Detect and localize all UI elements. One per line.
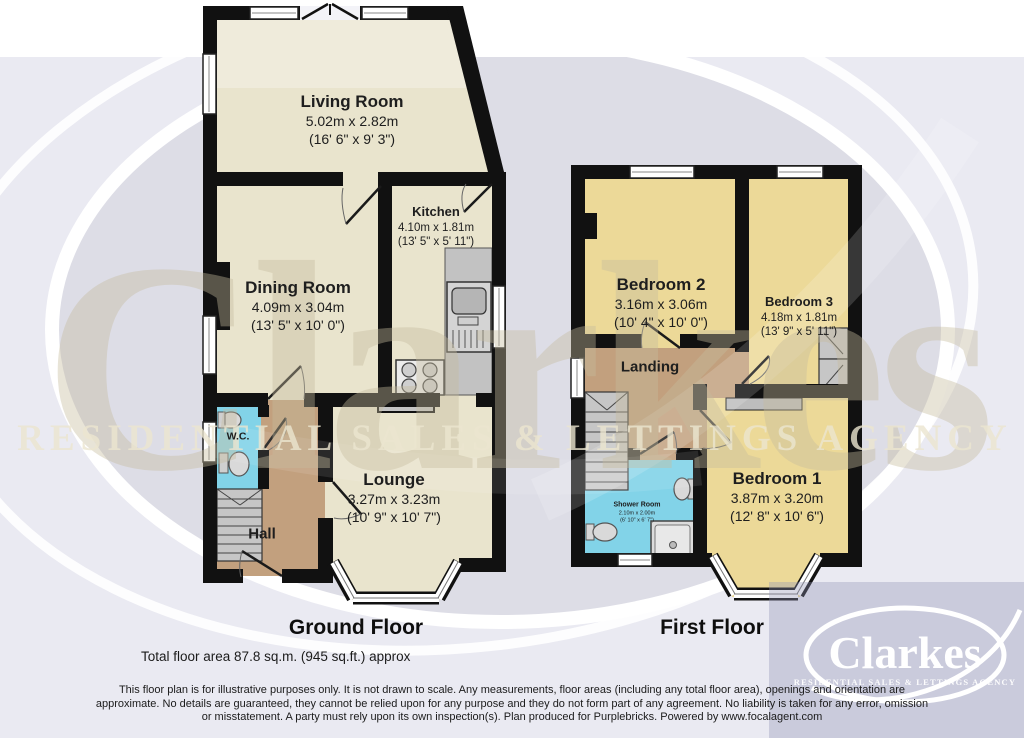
bedroom1-recess <box>726 398 802 410</box>
shower-sink-icon <box>674 478 694 500</box>
top-white-strip <box>0 0 1024 57</box>
landing-floor <box>585 348 749 398</box>
disclaimer-line-1: This floor plan is for illustrative purp… <box>0 684 1024 698</box>
disclaimer: This floor plan is for illustrative purp… <box>0 684 1024 725</box>
shower-toilet-icon <box>586 523 617 541</box>
disclaimer-line-2: approximate. No details are guaranteed, … <box>0 698 1024 712</box>
bedroom3-wardrobe-icon <box>819 328 848 392</box>
kitchen-hob-icon <box>396 360 444 395</box>
first-floor-plan <box>571 165 862 597</box>
ground-floor-plan <box>203 4 506 600</box>
disclaimer-line-3: or misstatement. A party must rely upon … <box>0 711 1024 725</box>
first-stairs <box>585 392 628 490</box>
first-floor-title: First Floor <box>660 616 764 640</box>
floorplan-page: Clarkes RESIDENTIAL SALES & LETTINGS AGE… <box>0 0 1024 738</box>
kitchen-counter-icon <box>445 248 492 395</box>
wc-toilet-icon <box>219 452 249 476</box>
living-room-highlight <box>210 20 470 88</box>
ground-stairs <box>217 489 262 561</box>
total-floor-area: Total floor area 87.8 sq.m. (945 sq.ft.)… <box>141 649 410 664</box>
logo-brand-text: Clarkes <box>828 627 981 678</box>
bedroom2-floor <box>585 179 735 349</box>
wc-sink-icon <box>218 412 241 428</box>
bedroom1-floor <box>707 398 848 558</box>
floor-plan-canvas: Clarkes RESIDENTIAL SALES & LETTINGS AGE… <box>0 0 1024 738</box>
ground-floor-title: Ground Floor <box>289 616 423 640</box>
lounge-floor <box>325 400 499 565</box>
